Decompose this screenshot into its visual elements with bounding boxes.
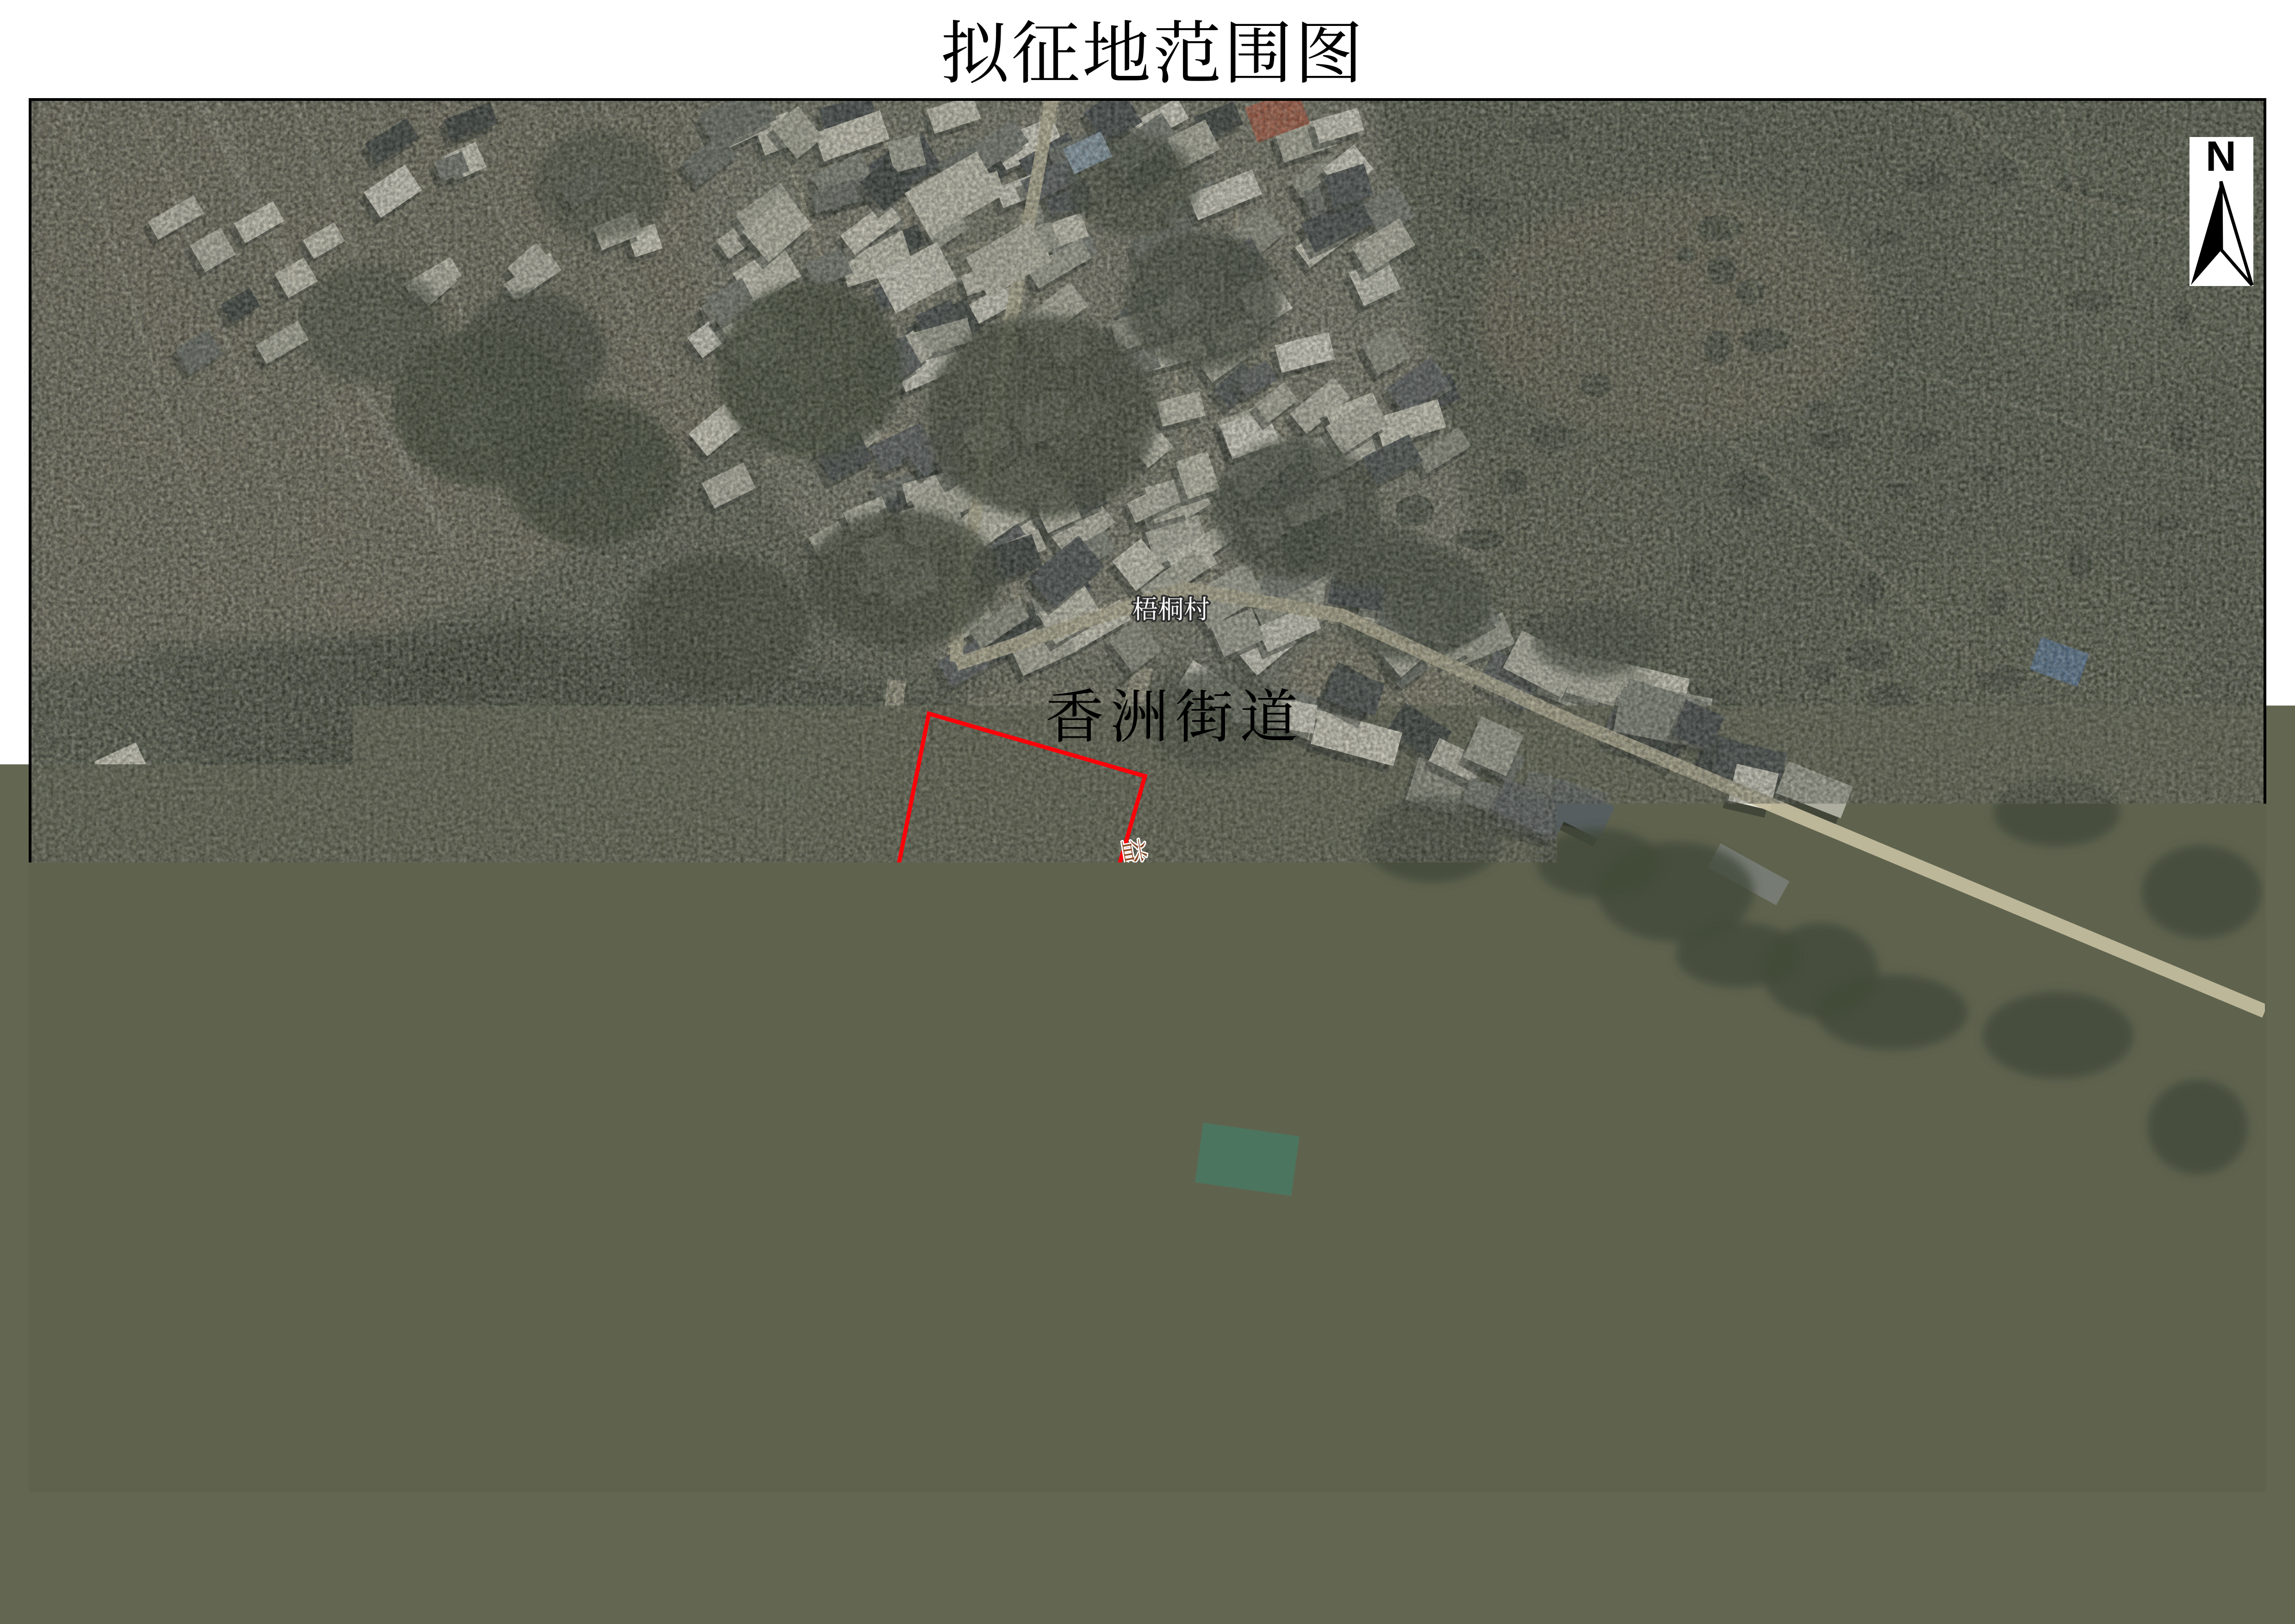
svg-text:N: N — [2206, 133, 2236, 180]
